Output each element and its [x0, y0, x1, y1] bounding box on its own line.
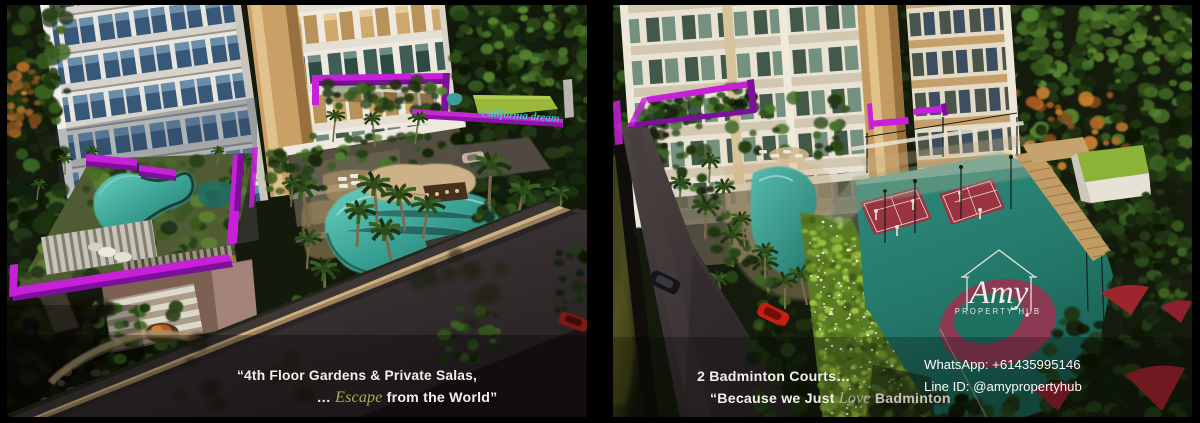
svg-text:… Escape from the World”: … Escape from the World”: [317, 389, 498, 406]
svg-text:WhatsApp: +61435995146: WhatsApp: +61435995146: [924, 357, 1081, 372]
svg-text:Line ID: @amypropertyhub: Line ID: @amypropertyhub: [924, 379, 1082, 394]
svg-text:“4th Floor Gardens & Private S: “4th Floor Gardens & Private Salas,: [237, 368, 477, 383]
svg-text:“Because we Just Love Badminto: “Because we Just Love Badminton: [710, 390, 951, 407]
svg-text:2 Badminton Courts…: 2 Badminton Courts…: [697, 369, 851, 385]
svg-text:Amy: Amy: [968, 275, 1029, 311]
